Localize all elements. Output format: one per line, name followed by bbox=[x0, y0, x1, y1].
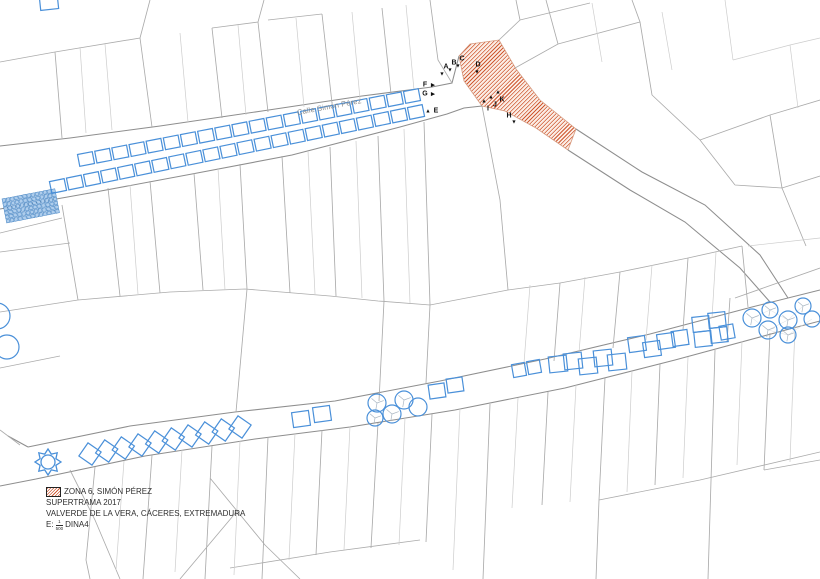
marker-triangle-icon: ▲ bbox=[495, 90, 500, 96]
legend-project: SUPERTRAMA 2017 bbox=[46, 498, 245, 509]
zone-marker-J: J bbox=[493, 102, 497, 109]
marker-triangle-icon: ▲ bbox=[488, 95, 493, 101]
zone-marker-F: F bbox=[423, 82, 427, 89]
zone-marker-E: E bbox=[434, 108, 439, 115]
scale-fraction: 1 500 bbox=[56, 519, 64, 531]
map-legend: ZONA 6, SIMÓN PÉREZ SUPERTRAMA 2017 VALV… bbox=[46, 487, 245, 531]
zone-marker-C: C bbox=[459, 56, 464, 63]
zone-marker-I: I bbox=[487, 106, 489, 113]
marker-triangle-icon: ▼ bbox=[439, 72, 444, 78]
zone-marker-K: K bbox=[499, 97, 504, 104]
legend-location: VALVERDE DE LA VERA, CÁCERES, EXTREMADUR… bbox=[46, 509, 245, 520]
cadastral-map-canvas: Calle Simón Pérez A▼B▼C▼D▼E▲F▶G▶H▼I▲J▲K▲… bbox=[0, 0, 820, 579]
marker-triangle-icon: ▶ bbox=[431, 92, 435, 98]
legend-zone-title: ZONA 6, SIMÓN PÉREZ bbox=[64, 487, 152, 498]
scale-format: DINA4 bbox=[65, 520, 89, 531]
legend-scale: E: 1 500 DINA4 bbox=[46, 519, 245, 531]
zone-marker-G: G bbox=[422, 91, 427, 98]
street-label: Calle Simón Pérez bbox=[296, 96, 362, 117]
marker-triangle-icon: ▼ bbox=[455, 64, 460, 70]
marker-triangle-icon: ▼ bbox=[474, 70, 479, 76]
marker-triangle-icon: ▲ bbox=[481, 99, 486, 105]
zone-hatch-swatch bbox=[46, 487, 61, 497]
marker-triangle-icon: ▲ bbox=[425, 109, 430, 115]
marker-triangle-icon: ▼ bbox=[511, 120, 516, 126]
marker-triangle-icon: ▼ bbox=[447, 68, 452, 74]
scale-prefix: E: bbox=[46, 520, 54, 531]
marker-triangle-icon: ▶ bbox=[431, 83, 435, 89]
annotation-layer: Calle Simón Pérez A▼B▼C▼D▼E▲F▶G▶H▼I▲J▲K▲… bbox=[0, 0, 820, 579]
zone-marker-D: D bbox=[475, 62, 480, 69]
